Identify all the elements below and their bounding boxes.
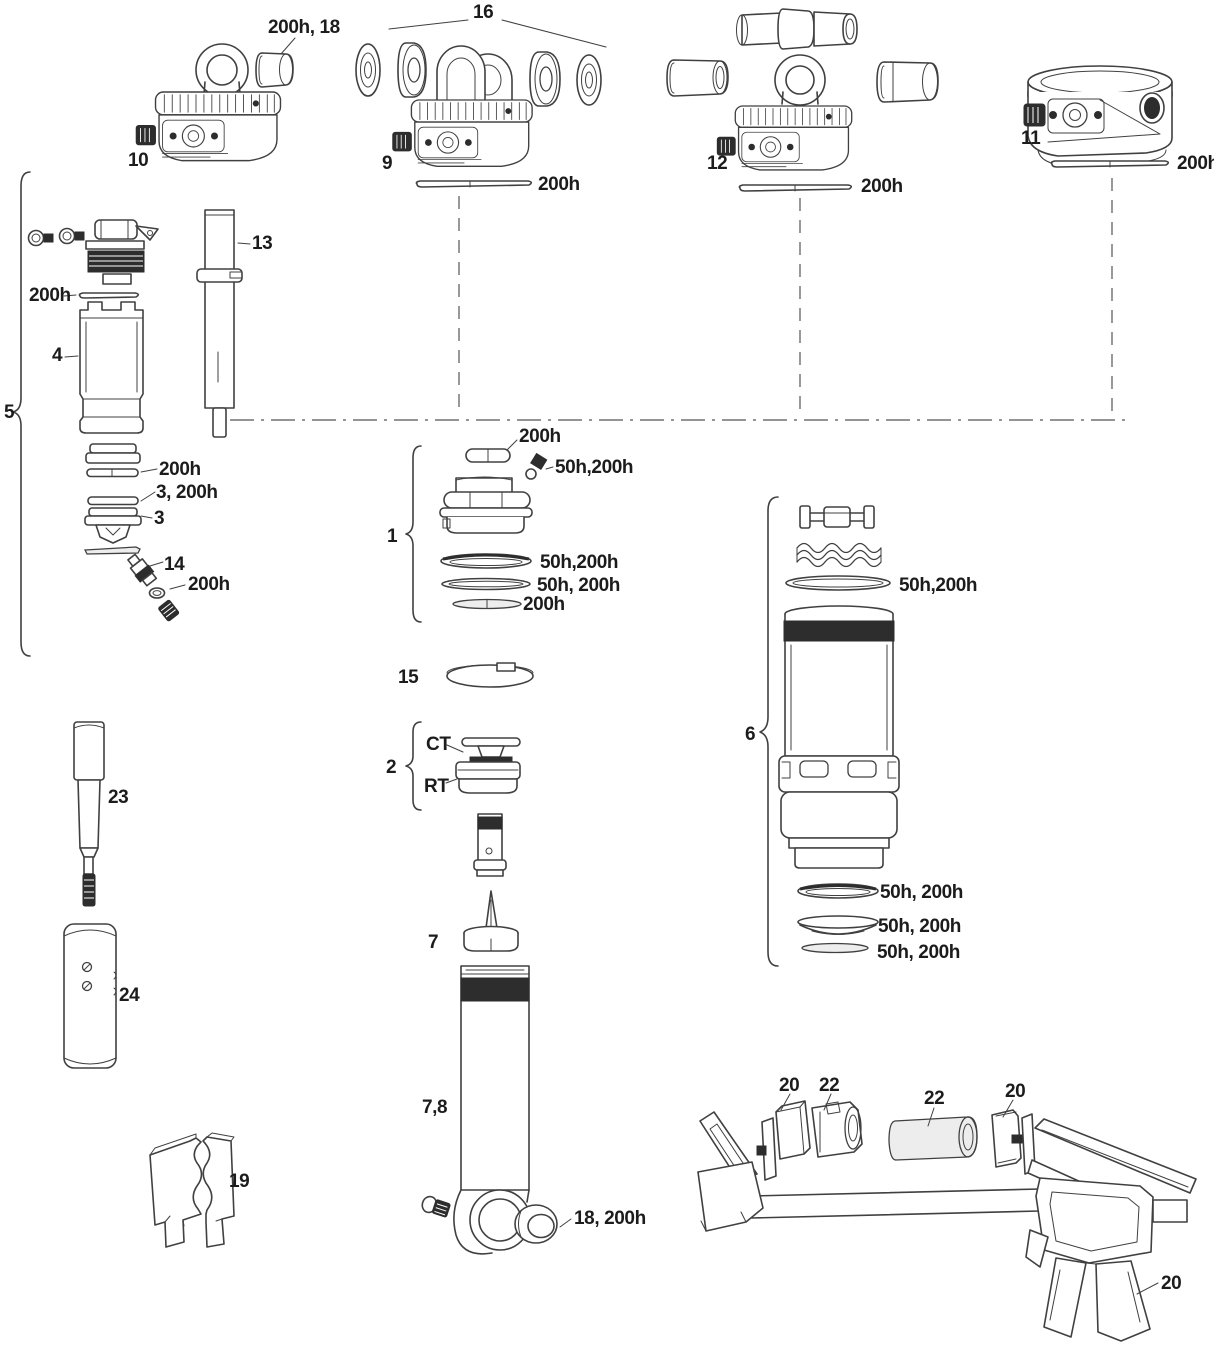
callout-5: 5 xyxy=(4,402,15,423)
callout-200h-18: 200h, 18 xyxy=(268,17,340,38)
callout-labels: 10 200h, 18 16 9 200h 12 200h 11 200h 13… xyxy=(4,2,1214,1294)
callout-20-handle: 20 xyxy=(1161,1273,1181,1294)
clevis-eyelet xyxy=(437,46,512,106)
callout-6: 6 xyxy=(745,724,755,745)
bushing-right xyxy=(877,62,938,102)
callout-22-sleeve: 22 xyxy=(924,1088,944,1109)
clamp-adapter-22-left xyxy=(812,1102,862,1157)
callout-10: 10 xyxy=(128,150,148,171)
callout-200h-part11: 200h xyxy=(1177,153,1214,174)
ct-piece xyxy=(462,738,520,762)
callout-14: 14 xyxy=(164,554,185,575)
part-9-body xyxy=(393,100,532,166)
bearing-left xyxy=(398,43,426,97)
callout-200h-part9: 200h xyxy=(538,174,580,195)
part-15-retaining-ring xyxy=(447,663,533,687)
part-10-damper-head-eyelet xyxy=(136,44,293,161)
part-18-bushing-lower xyxy=(515,1205,557,1243)
spacer-stack xyxy=(737,9,858,49)
part-9-damper-head-bearings xyxy=(356,43,601,187)
callout-50h-200h-can-c: 50h, 200h xyxy=(877,942,960,963)
callout-15: 15 xyxy=(398,667,419,688)
callout-22-left: 22 xyxy=(819,1075,839,1096)
part-4-reservoir-body xyxy=(80,302,143,433)
threaded-plug xyxy=(158,600,179,622)
screw-oring-50h-200h xyxy=(526,454,547,479)
clamp-body-right xyxy=(1026,1119,1196,1341)
part-11-damper-head xyxy=(1024,66,1172,167)
callout-9: 9 xyxy=(382,153,392,174)
callout-rt: RT xyxy=(424,776,449,797)
bleed-screw xyxy=(420,1195,451,1219)
callout-23: 23 xyxy=(108,787,128,808)
bearing-right xyxy=(530,52,560,106)
callout-50h-200h-can-a: 50h, 200h xyxy=(880,882,963,903)
part-18-bushing xyxy=(256,53,293,87)
callout-7: 7 xyxy=(428,932,438,953)
air-can-body xyxy=(779,606,899,868)
part-14-valve xyxy=(125,552,158,588)
callout-16: 16 xyxy=(473,2,493,23)
callout-200h-oring14: 200h xyxy=(188,574,230,595)
part-11-washer-200h xyxy=(1051,161,1168,167)
part-19-clamp-blocks xyxy=(150,1133,234,1247)
seal-50h200h-can-c xyxy=(802,944,868,953)
brace-5 xyxy=(13,172,30,656)
callout-3: 3 xyxy=(154,508,164,529)
callout-11: 11 xyxy=(1021,128,1041,149)
screws-pair xyxy=(29,229,85,246)
callout-200h-sealstack: 200h xyxy=(159,459,201,480)
clamp-bar xyxy=(752,1189,1040,1218)
seal-50h200h-a xyxy=(441,554,531,568)
part-24-tool-sleeve xyxy=(64,924,116,1068)
ring-200h xyxy=(453,600,521,609)
callout-200h-part12: 200h xyxy=(861,176,903,197)
callout-4: 4 xyxy=(52,345,63,366)
part-9-washer-200h xyxy=(416,181,531,187)
oring-50h200h xyxy=(786,576,890,590)
callout-19: 19 xyxy=(229,1171,249,1192)
callout-50h200h-screw: 50h,200h xyxy=(555,457,633,478)
group-5-damper-internals xyxy=(13,172,179,656)
callout-200h-adjuster: 200h xyxy=(29,285,71,306)
part-12-washer-200h xyxy=(739,185,851,191)
callout-13: 13 xyxy=(252,233,272,254)
diagram-page: 10 200h, 18 16 9 200h 12 200h 11 200h 13… xyxy=(0,0,1214,1347)
callout-20-left: 20 xyxy=(779,1075,799,1096)
oring-200h-small xyxy=(150,588,165,598)
brace-6 xyxy=(760,497,778,966)
part-10-body xyxy=(136,92,280,161)
seal-50h200h-can-b xyxy=(798,916,878,935)
callout-20-right: 20 xyxy=(1005,1081,1025,1102)
callout-1: 1 xyxy=(387,526,398,547)
callout-50h-200h-can-b: 50h, 200h xyxy=(878,916,961,937)
exploded-diagram-canvas: 10 200h, 18 16 9 200h 12 200h 11 200h 13… xyxy=(0,0,1214,1347)
part-7-cone xyxy=(464,891,518,951)
seal-50h200h-b xyxy=(442,579,530,590)
callout-24: 24 xyxy=(119,985,140,1006)
wave-spring xyxy=(797,544,881,567)
seal-50h200h-can-a xyxy=(798,884,878,898)
bar-clamp-tool xyxy=(698,1101,1196,1341)
part-13-shaft xyxy=(197,210,242,437)
callout-ct: CT xyxy=(426,734,451,755)
cap-200h xyxy=(466,449,510,462)
clamp-pad-20-right xyxy=(992,1110,1035,1174)
callout-18-200h: 18, 200h xyxy=(574,1208,646,1229)
clamp-sleeve-22 xyxy=(889,1117,977,1160)
callout-50h200h-seal-a: 50h,200h xyxy=(540,552,618,573)
part-23-tool xyxy=(74,722,104,906)
callout-2: 2 xyxy=(386,757,396,778)
group-6-air-can xyxy=(760,497,899,966)
damper-piston xyxy=(474,814,506,876)
callout-50h200h-can-oring: 50h,200h xyxy=(899,575,977,596)
valve-cross-pin xyxy=(800,506,874,528)
bushing-left xyxy=(667,60,728,96)
callout-7-8: 7,8 xyxy=(422,1097,447,1118)
callout-12: 12 xyxy=(707,153,727,174)
bearing-washer-left xyxy=(356,44,380,96)
callout-50h-200h-seal-b: 50h, 200h xyxy=(537,575,620,596)
callout-3-200h: 3, 200h xyxy=(156,482,218,503)
bearing-washer-right xyxy=(577,55,601,105)
head-assembly xyxy=(440,477,532,533)
brace-2 xyxy=(406,722,421,810)
seal-head-stack xyxy=(85,444,141,554)
brace-1 xyxy=(406,446,421,622)
callout-200h-group1-bottom: 200h xyxy=(523,594,565,615)
washer-200h-under-adjuster xyxy=(79,293,138,298)
rt-piece xyxy=(456,762,520,793)
rebound-adjuster-head xyxy=(86,220,158,284)
part-12-body xyxy=(717,106,851,170)
callout-200h-group1-top: 200h xyxy=(519,426,561,447)
